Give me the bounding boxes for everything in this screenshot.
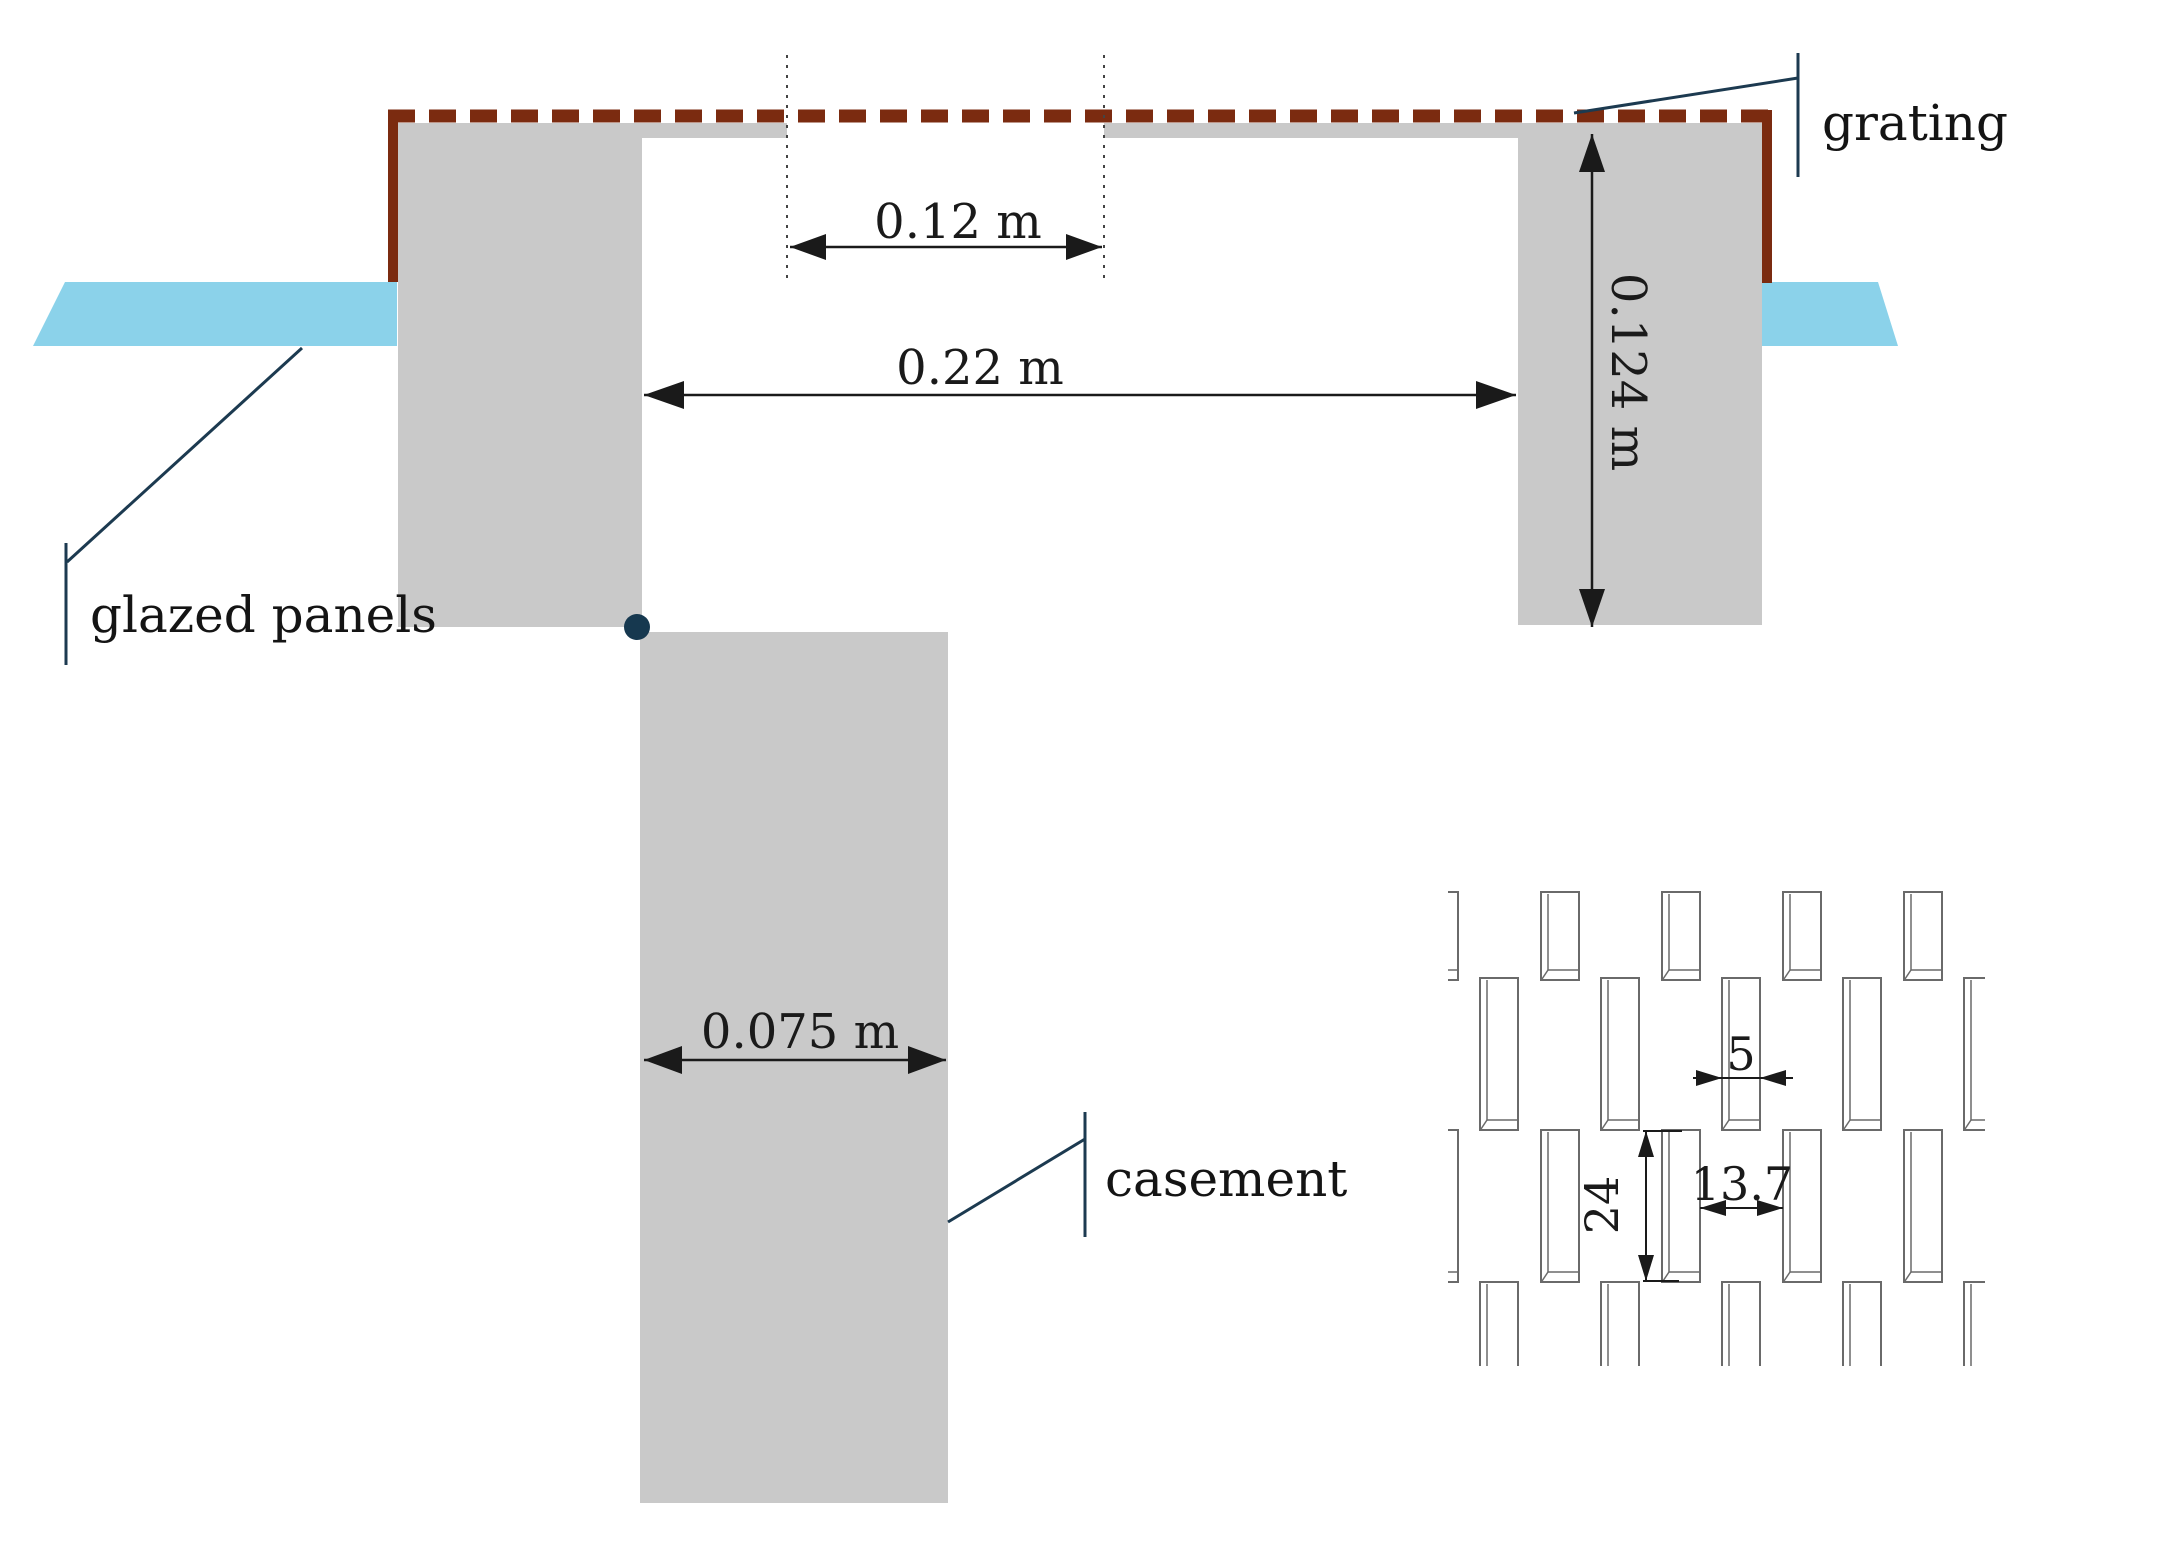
casement-label: casement bbox=[1105, 1150, 1347, 1208]
dim-label-frame-height: 0.124 m bbox=[1600, 273, 1656, 471]
glazed-panel-right bbox=[1762, 282, 1898, 346]
detail-label-slot-height: 24 bbox=[1575, 1176, 1629, 1235]
casement-callout-line bbox=[948, 1139, 1085, 1222]
grating-slot bbox=[1662, 892, 1700, 980]
grating-slot bbox=[1480, 1282, 1518, 1434]
left-frame-block bbox=[398, 123, 642, 627]
grating-slot bbox=[1541, 1130, 1579, 1282]
grating-slot bbox=[1480, 978, 1518, 1130]
top-panel-strip-right bbox=[1104, 123, 1518, 138]
grating-slot bbox=[1601, 978, 1639, 1130]
arrowhead-up-icon bbox=[1638, 1131, 1654, 1157]
pivot-dot bbox=[624, 614, 650, 640]
grating-callout-line bbox=[1574, 78, 1798, 113]
glazed-panels-label: glazed panels bbox=[90, 586, 437, 644]
arrowhead-right-icon bbox=[1066, 234, 1102, 260]
grating-slot bbox=[1420, 1130, 1458, 1282]
grating-left-return bbox=[388, 110, 398, 282]
glazed-panels-callout-line bbox=[67, 348, 302, 562]
dim-label-grating-opening: 0.12 m bbox=[874, 194, 1042, 250]
grating-slot bbox=[1601, 1282, 1639, 1434]
arrowhead-left-icon bbox=[1760, 1070, 1786, 1086]
grating-slot bbox=[1964, 978, 2002, 1130]
grating-slot bbox=[1541, 892, 1579, 980]
arrowhead-right-icon bbox=[1696, 1070, 1722, 1086]
grating-slot bbox=[1843, 1282, 1881, 1434]
arrowhead-right-icon bbox=[1476, 381, 1516, 409]
detail-label-slot-width: 5 bbox=[1726, 1027, 1755, 1081]
grating-right-return bbox=[1762, 110, 1772, 283]
grating-slot bbox=[1783, 892, 1821, 980]
grating-slot bbox=[1420, 892, 1458, 980]
arrowhead-down-icon bbox=[1638, 1255, 1654, 1281]
casement-block bbox=[640, 632, 948, 1503]
grating-slot bbox=[1843, 978, 1881, 1130]
arrowhead-left-icon bbox=[644, 381, 684, 409]
grating-slot bbox=[1904, 892, 1942, 980]
dim-label-casement-width: 0.075 m bbox=[701, 1004, 899, 1060]
glazed-panel-left bbox=[33, 282, 397, 346]
grating-label: grating bbox=[1822, 94, 2008, 152]
grating-slot bbox=[1722, 1282, 1760, 1434]
top-panel-strip-left bbox=[642, 123, 787, 138]
cross-section-diagram: 0.12 m 0.22 m 0.124 m 0.075 m grating gl… bbox=[0, 0, 2164, 1546]
detail-label-slot-gap: 13.7 bbox=[1691, 1157, 1793, 1211]
arrowhead-left-icon bbox=[790, 234, 826, 260]
dim-label-cavity-width: 0.22 m bbox=[896, 340, 1064, 396]
grating-slot bbox=[1964, 1282, 2002, 1434]
grating-slot bbox=[1904, 1130, 1942, 1282]
